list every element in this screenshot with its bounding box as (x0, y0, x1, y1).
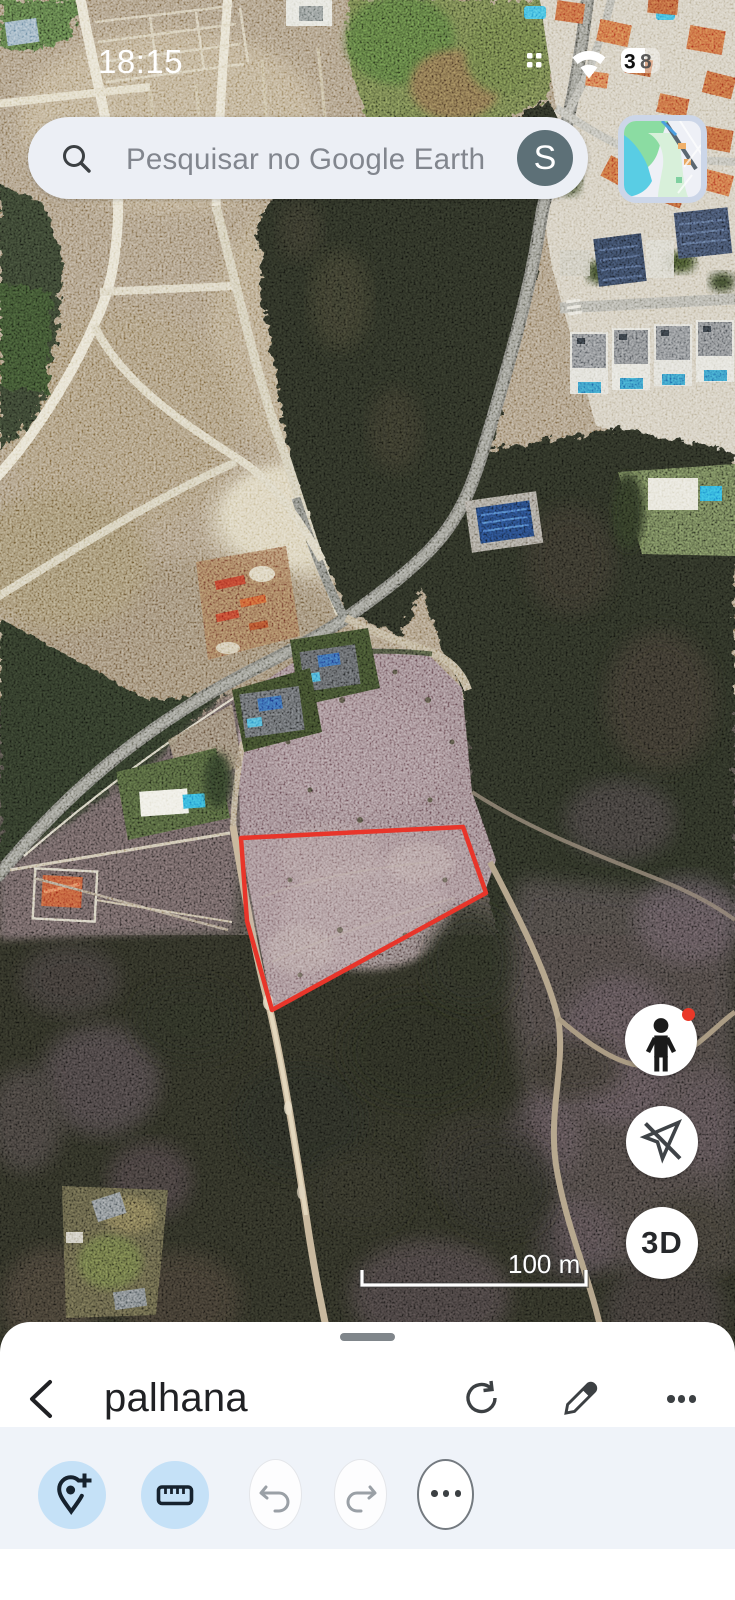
svg-text:3: 3 (624, 51, 636, 74)
svg-text:8: 8 (640, 51, 652, 74)
svg-text:100 m: 100 m (508, 1249, 580, 1279)
